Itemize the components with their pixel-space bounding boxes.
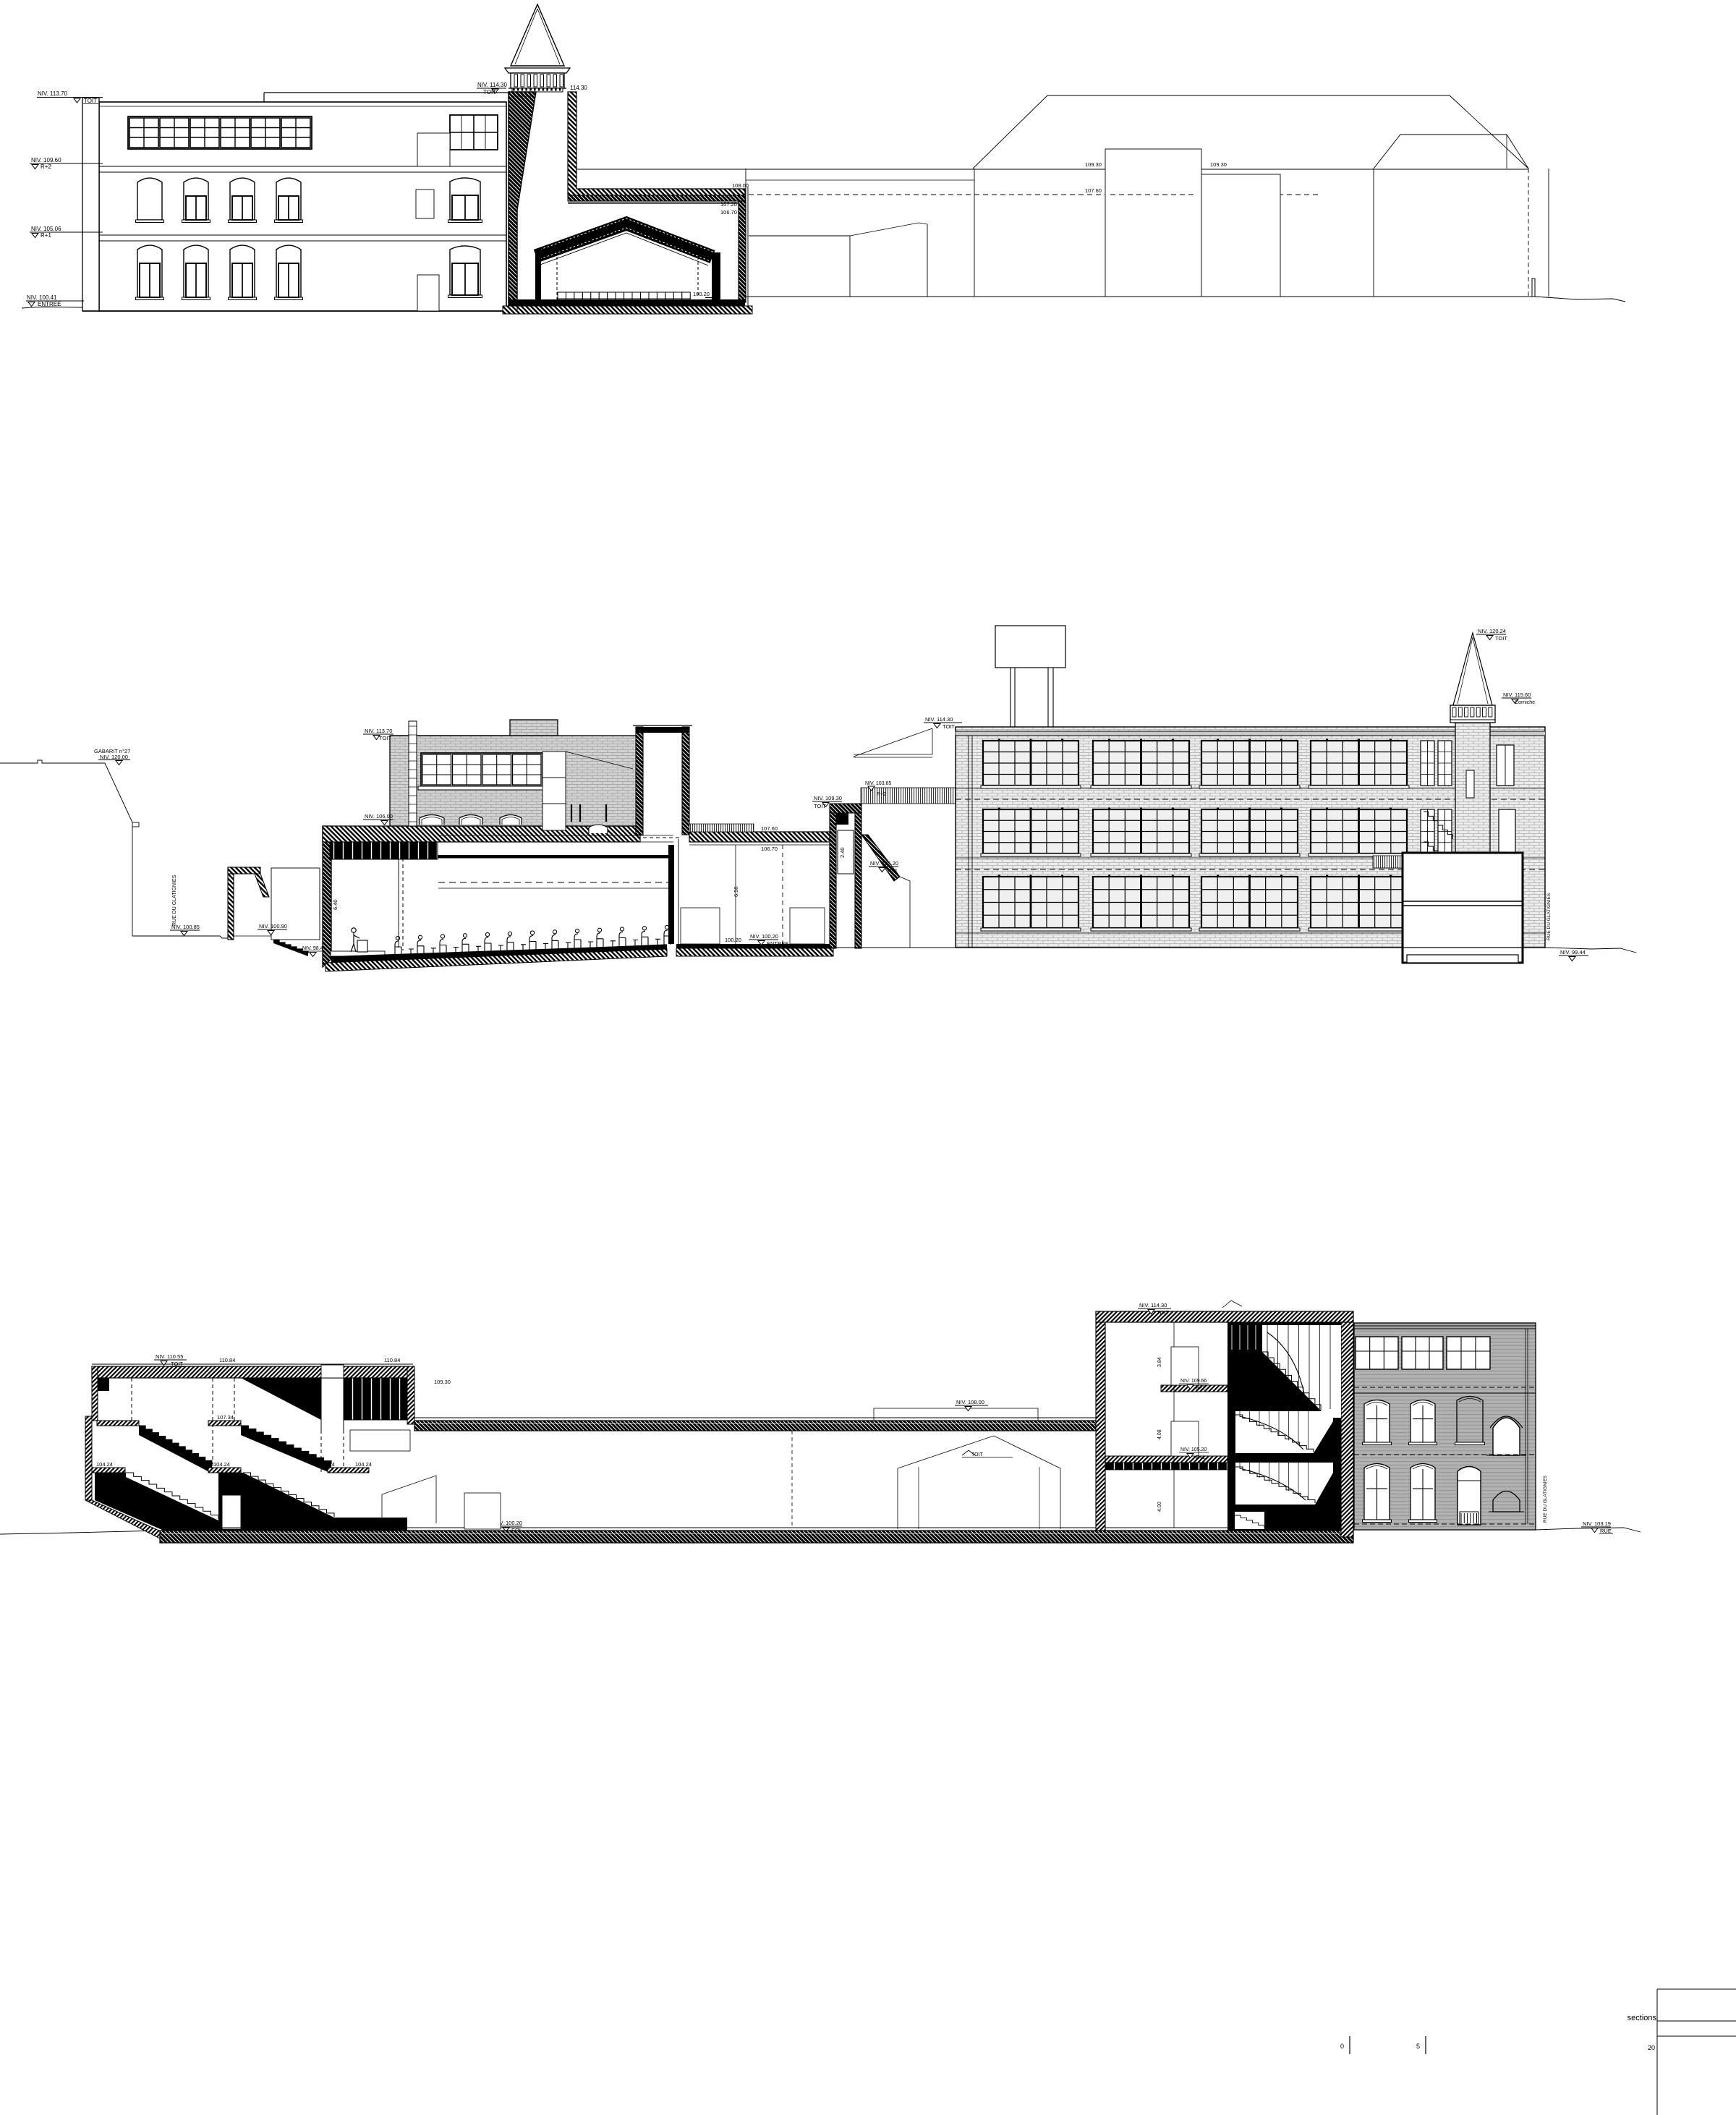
svg-text:6.50: 6.50: [733, 886, 739, 897]
svg-text:NIV. 110.55: NIV. 110.55: [156, 1353, 183, 1360]
svg-text:TOIT: TOIT: [171, 1361, 183, 1367]
svg-text:NIV. 109.66: NIV. 109.66: [1180, 1379, 1207, 1384]
svg-text:104.24: 104.24: [355, 1461, 372, 1468]
svg-text:TOIT: TOIT: [943, 723, 955, 730]
svg-text:TOIT: TOIT: [84, 98, 97, 104]
svg-text:TOIT: TOIT: [379, 735, 391, 741]
svg-text:106.70: 106.70: [720, 209, 737, 216]
svg-text:NIV. 99.44: NIV. 99.44: [1560, 949, 1586, 956]
svg-text:3.84: 3.84: [1157, 1357, 1162, 1367]
svg-text:NIV. 114.30: NIV. 114.30: [477, 82, 507, 88]
svg-text:NIV. 100.85: NIV. 100.85: [171, 924, 200, 930]
svg-text:114.30: 114.30: [570, 85, 587, 91]
svg-text:NIV. 100.90: NIV. 100.90: [259, 923, 287, 929]
svg-text:108.00: 108.00: [732, 182, 749, 189]
svg-text:100.20: 100.20: [725, 937, 741, 943]
svg-text:NIV. 120.24: NIV. 120.24: [1478, 628, 1506, 634]
svg-text:4.08: 4.08: [1157, 1429, 1162, 1439]
svg-text:2.40: 2.40: [839, 847, 846, 858]
svg-text:104.24: 104.24: [96, 1461, 113, 1468]
svg-text:20: 20: [1648, 2044, 1655, 2051]
svg-text:TOIT: TOIT: [814, 803, 826, 809]
svg-text:R+2: R+2: [877, 792, 886, 797]
svg-text:0: 0: [1340, 2043, 1344, 2050]
svg-text:100.20: 100.20: [693, 291, 710, 297]
svg-text:R+2: R+2: [41, 163, 51, 170]
svg-text:5: 5: [1416, 2043, 1420, 2050]
svg-text:NIV. 103.19: NIV. 103.19: [1583, 1520, 1611, 1527]
svg-text:104.24: 104.24: [213, 1461, 230, 1468]
svg-text:NIV. 114.30: NIV. 114.30: [1139, 1302, 1167, 1308]
svg-text:4.00: 4.00: [1157, 1502, 1162, 1512]
svg-text:NIV. 114.30: NIV. 114.30: [925, 716, 953, 723]
svg-text:TOIT: TOIT: [971, 1452, 984, 1457]
svg-text:R+2: R+2: [1196, 1386, 1205, 1391]
svg-text:109.30: 109.30: [434, 1379, 451, 1385]
svg-text:NIV. 105.20: NIV. 105.20: [870, 860, 898, 867]
svg-text:NIV. 108.00: NIV. 108.00: [956, 1399, 984, 1405]
svg-text:6.40: 6.40: [332, 899, 339, 910]
svg-text:TOIT: TOIT: [1157, 1309, 1169, 1316]
svg-text:sections: sections: [1627, 2014, 1657, 2022]
svg-text:107.60: 107.60: [761, 825, 778, 832]
svg-text:RUE DU GLATIGNIES: RUE DU GLATIGNIES: [1546, 893, 1552, 940]
svg-text:ENTREE: ENTREE: [38, 301, 61, 307]
svg-text:107.60: 107.60: [1085, 187, 1102, 194]
svg-text:107.20: 107.20: [720, 201, 737, 208]
svg-text:109.30: 109.30: [1210, 161, 1227, 168]
svg-text:107.34: 107.34: [217, 1414, 234, 1421]
svg-text:NIV. 113.70: NIV. 113.70: [38, 90, 67, 97]
svg-text:NIV. 120.00: NIV. 120.00: [100, 754, 128, 760]
svg-text:110.84: 110.84: [219, 1357, 235, 1363]
svg-text:TOIT: TOIT: [1495, 635, 1507, 642]
svg-text:NIV. 100.20: NIV. 100.20: [750, 933, 778, 940]
svg-text:ENTREE: ENTREE: [767, 940, 788, 947]
svg-text:R+1: R+1: [41, 232, 51, 239]
svg-text:TOIT: TOIT: [483, 89, 496, 95]
svg-text:RUE: RUE: [1600, 1528, 1612, 1534]
svg-text:NIV. 100.41: NIV. 100.41: [27, 294, 57, 301]
svg-text:NIV. 105.20: NIV. 105.20: [1180, 1447, 1207, 1452]
svg-text:110.84: 110.84: [384, 1357, 400, 1363]
svg-text:NIV. 103.65: NIV. 103.65: [865, 781, 891, 786]
svg-text:NIV. 113.70: NIV. 113.70: [365, 728, 392, 734]
svg-text:109.30: 109.30: [1085, 161, 1102, 168]
svg-text:RUE DU GLATIGNIES: RUE DU GLATIGNIES: [1543, 1475, 1548, 1523]
svg-text:NIV. 115.60: NIV. 115.60: [1503, 691, 1531, 698]
svg-text:Corniche: Corniche: [1515, 700, 1535, 705]
svg-text:R+1: R+1: [1196, 1455, 1205, 1460]
svg-text:NIV. 106.00: NIV. 106.00: [365, 813, 393, 820]
svg-text:NIV. 105.06: NIV. 105.06: [31, 226, 61, 232]
svg-text:NIV. 109.30: NIV. 109.30: [814, 795, 842, 801]
svg-text:R+1: R+1: [888, 867, 898, 874]
svg-text:NIV. 109.60: NIV. 109.60: [31, 157, 61, 163]
svg-text:RUE DU GLATIGNIES: RUE DU GLATIGNIES: [172, 874, 177, 926]
svg-text:106.70: 106.70: [761, 846, 778, 852]
